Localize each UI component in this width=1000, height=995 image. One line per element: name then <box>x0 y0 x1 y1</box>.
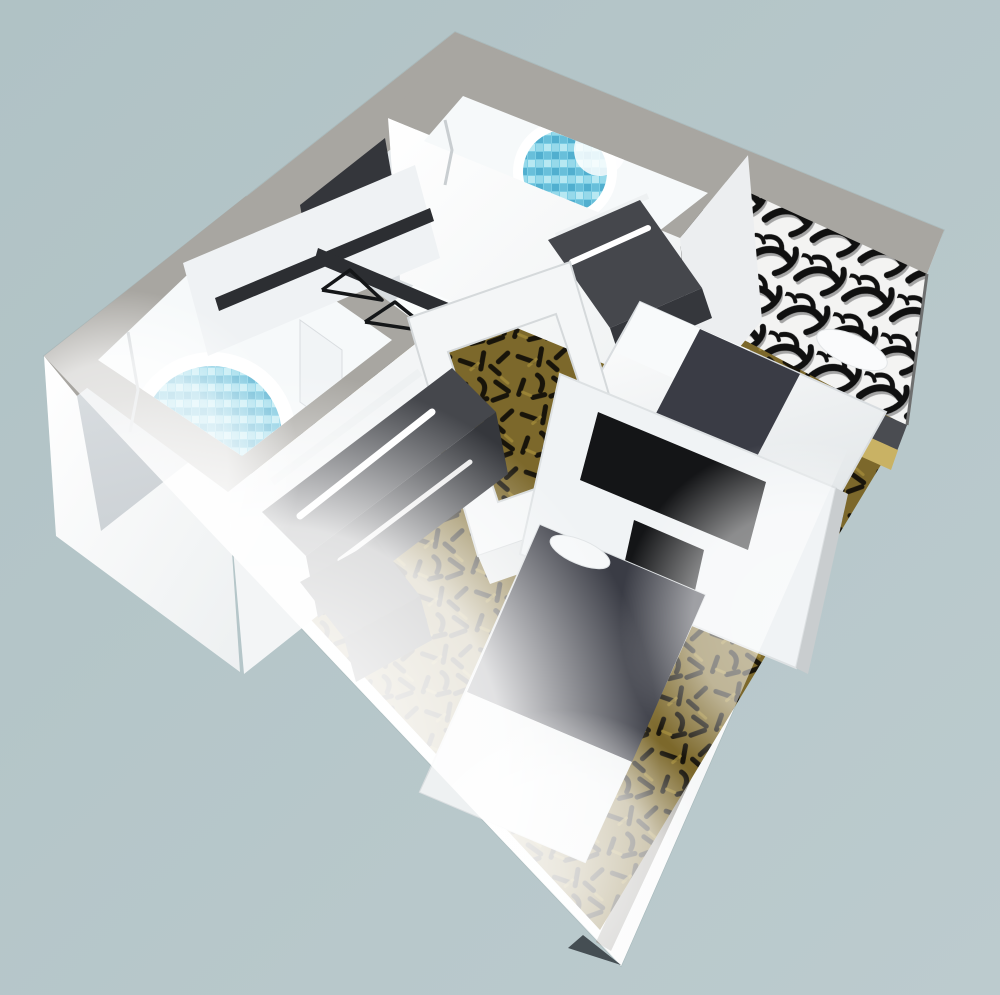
floorplan-render <box>0 0 1000 995</box>
floorplan-render-stage <box>0 0 1000 995</box>
